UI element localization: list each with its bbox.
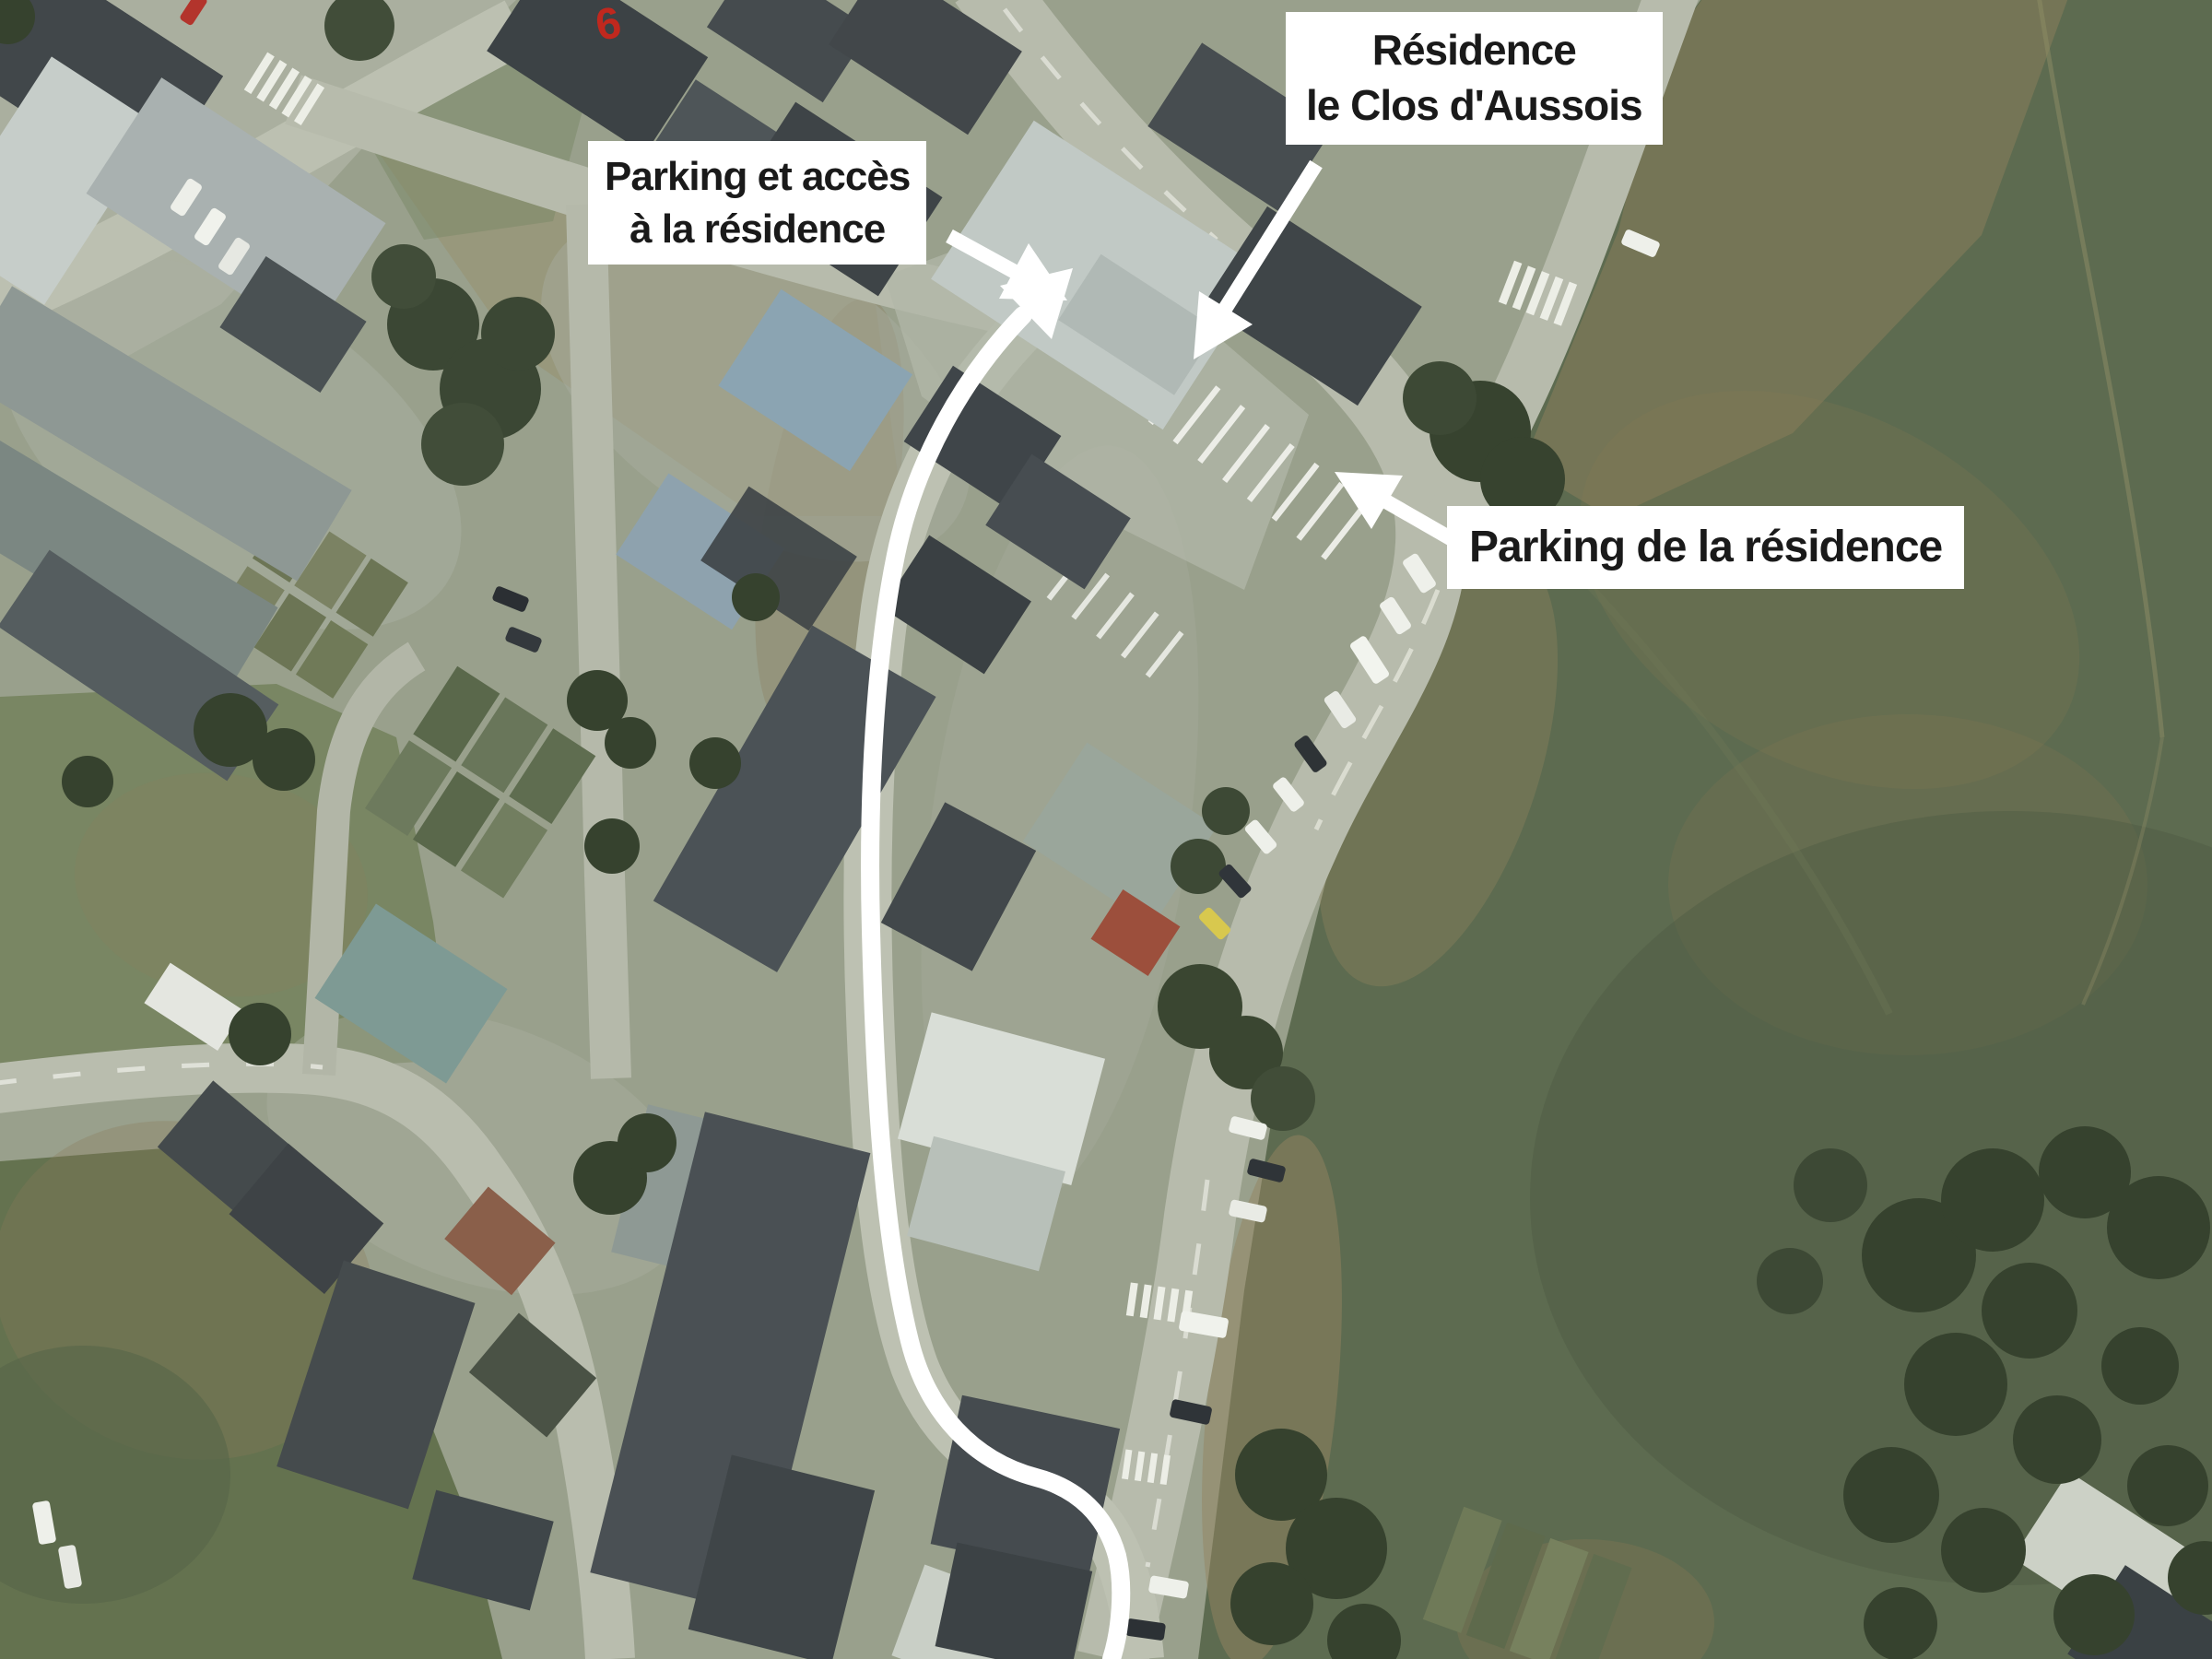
label-line: le Clos d'Aussois (1306, 78, 1642, 134)
label-parking-access: Parking et accès à la résidence (588, 141, 926, 265)
annotated-satellite-map: 6 Parking et accès à la résidence Réside… (0, 0, 2212, 1659)
road-middle-street (586, 205, 611, 1078)
label-residence: Résidence le Clos d'Aussois (1286, 12, 1663, 145)
label-line: Parking et accès (605, 150, 910, 203)
yellow-car (1197, 906, 1231, 941)
label-line: à la résidence (605, 203, 910, 255)
satellite-photo: 6 (0, 0, 2212, 1659)
label-parking-residence: Parking de la résidence (1447, 506, 1964, 589)
label-line: Résidence (1306, 23, 1642, 78)
label-line: Parking de la résidence (1469, 519, 1942, 576)
